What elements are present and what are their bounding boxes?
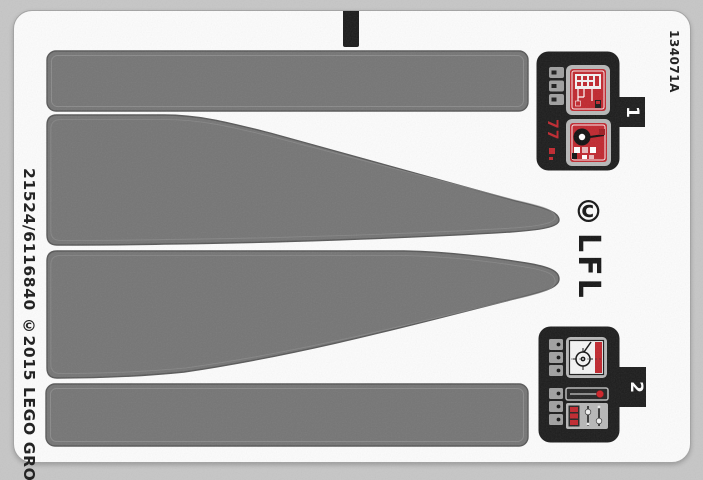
decal-wing-upper-icon: [47, 115, 559, 245]
control-panel-sticker-1: 77: [536, 51, 646, 173]
svg-text:77: 77: [544, 119, 560, 140]
sticker1-number: 1: [622, 106, 642, 118]
control-panel-sticker-2: 2: [538, 326, 648, 444]
sticker1-schematic-screen-icon: [566, 65, 610, 115]
sticker-sheet: 21524/6116840 ©2015 LEGO GROUP 134071A ©…: [13, 10, 691, 463]
sticker2-horizontal-slider-icon: [566, 388, 608, 400]
decal-wing-lower-icon: [47, 251, 559, 378]
scan-background: 21524/6116840 ©2015 LEGO GROUP 134071A ©…: [0, 0, 703, 480]
sticker1-keypad-icon: [549, 67, 564, 105]
sticker2-vertical-sliders-icon: [566, 403, 608, 429]
sticker1-knob-panel-icon: [566, 119, 611, 166]
decal-stripe-bottom-icon: [46, 384, 528, 446]
sticker2-targeting-screen-icon: [566, 337, 607, 378]
decal-stripe-top-icon: [47, 51, 528, 111]
sticker2-number: 2: [626, 381, 646, 393]
